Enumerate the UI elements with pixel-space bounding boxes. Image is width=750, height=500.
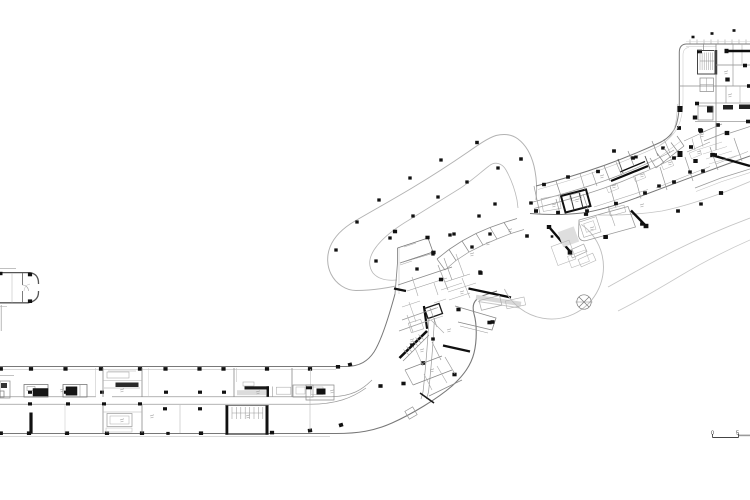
svg-text:5: 5: [736, 431, 739, 437]
svg-text:0: 0: [711, 431, 714, 437]
